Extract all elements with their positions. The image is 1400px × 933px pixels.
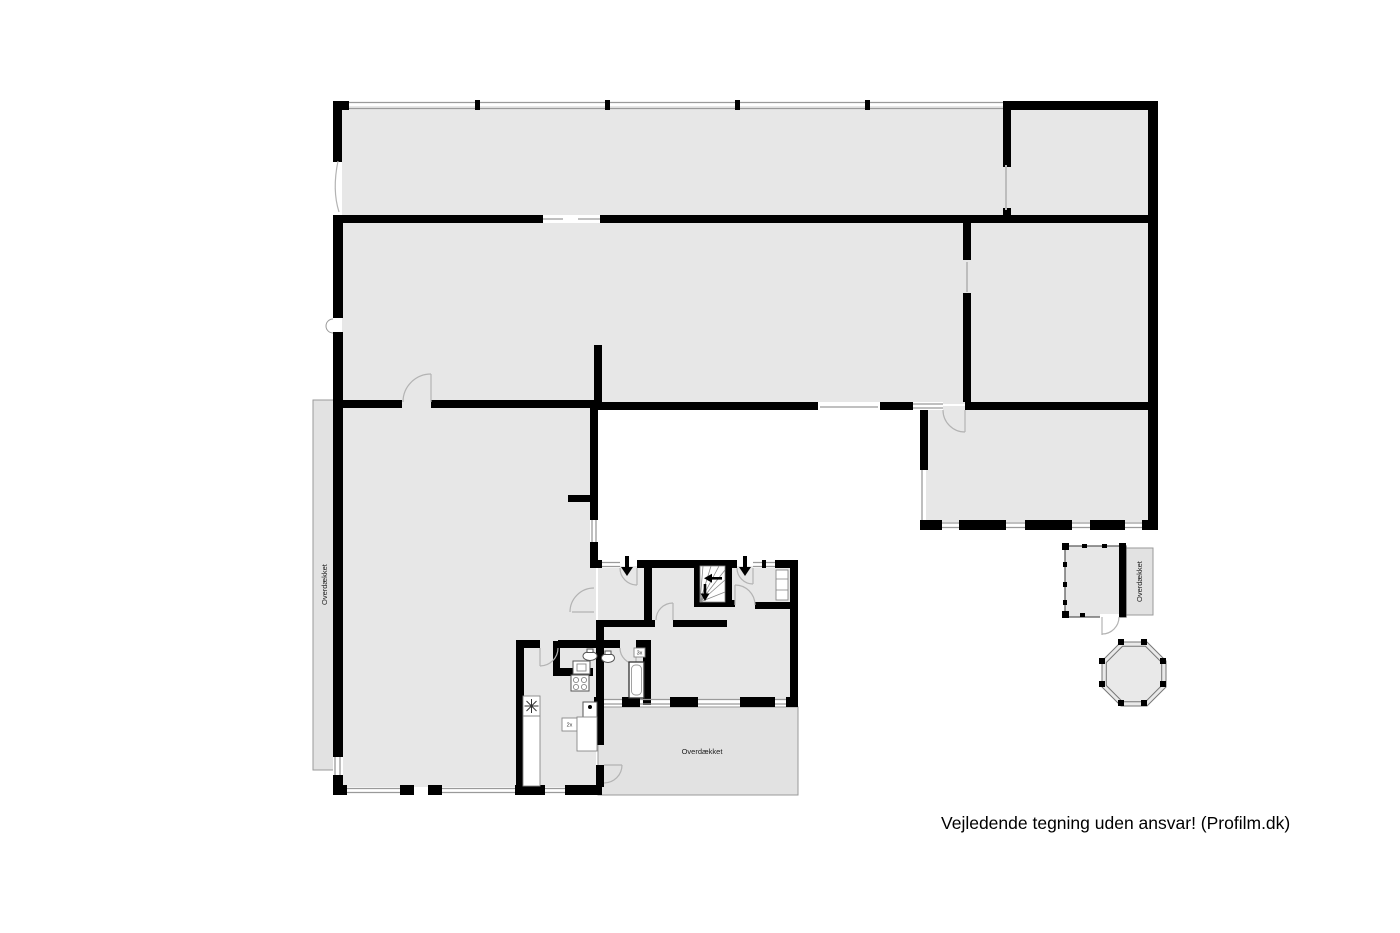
window-mullion xyxy=(865,100,870,110)
floorplan-drawing: 2x 3x xyxy=(0,0,1400,933)
door-left-bump xyxy=(326,319,333,333)
outbuilding xyxy=(1062,543,1126,635)
floorplan-page: 2x 3x xyxy=(0,0,1400,933)
window-mullion xyxy=(475,100,480,110)
room-fills xyxy=(342,106,1148,787)
top-window-wall xyxy=(348,100,1005,110)
room-top-band xyxy=(342,106,1148,217)
room-middle-band xyxy=(342,217,1148,404)
faucet xyxy=(588,705,592,709)
disclaimer-text: Vejledende tegning uden ansvar! (Profilm… xyxy=(941,813,1290,834)
kitchen-sink xyxy=(583,702,597,719)
snowflake-icon xyxy=(525,699,539,713)
sliding-door xyxy=(1005,165,1007,210)
outbuilding-covered-label: Overdækket xyxy=(1135,560,1144,602)
kitchen-unit-tag: 2x xyxy=(567,723,573,729)
room-right-lower xyxy=(926,406,1148,522)
room-lower-left xyxy=(342,404,596,787)
cabinet-tag: 3x xyxy=(637,651,643,657)
outbuilding-door xyxy=(1102,617,1119,634)
sliding-door xyxy=(966,262,968,292)
wardrobe xyxy=(776,570,788,600)
kitchen-counter xyxy=(577,717,597,751)
staircase xyxy=(700,566,725,602)
window-mullion xyxy=(605,100,610,110)
window-mullion xyxy=(735,100,740,110)
door-top-left xyxy=(335,161,339,212)
left-covered-label: Overdækket xyxy=(320,563,329,605)
terrace-label: Overdækket xyxy=(682,747,724,756)
gazebo-octagon xyxy=(1099,639,1166,706)
